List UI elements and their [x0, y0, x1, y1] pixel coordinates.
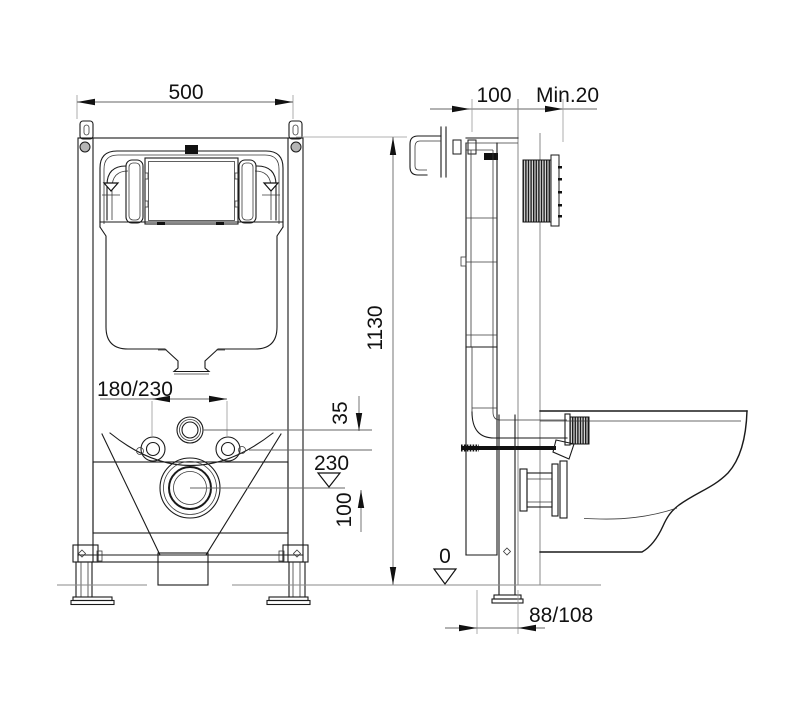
bolt-spacing-dimension: 180/230 — [97, 378, 227, 437]
top-clip — [185, 145, 198, 154]
frame-depth-label: 100 — [476, 84, 511, 107]
arrow-up-icon — [358, 490, 364, 508]
outlet-offset-label: 100 — [333, 492, 356, 527]
hatched-actuator-box — [523, 160, 551, 222]
adjuster-mark-right — [294, 550, 301, 557]
arrow-left-icon — [77, 99, 95, 105]
adjuster-mark-left — [79, 550, 86, 557]
cistern-column-left — [126, 160, 143, 223]
wall-min-label: Min.20 — [536, 84, 599, 107]
side-view: 100 Min.20 — [410, 84, 747, 634]
front-width-label: 500 — [168, 81, 203, 104]
height-label: 1130 — [364, 305, 387, 350]
wall-bracket — [410, 127, 499, 177]
technical-drawing-page: 500 — [0, 0, 800, 702]
support-feet-front — [71, 545, 310, 605]
arrow-right-icon — [275, 99, 293, 105]
lower-crossmember — [93, 462, 288, 533]
water-level-marker-left — [102, 183, 120, 195]
flush-bend-housing — [158, 553, 208, 585]
screw-head-left — [80, 142, 90, 152]
tab-slot-left — [84, 125, 89, 135]
drain-distance-label: 88/108 — [529, 604, 593, 627]
flush-offset-label: 35 — [329, 401, 352, 424]
tab-slot-right — [293, 125, 298, 135]
flush-pipe-front — [177, 417, 203, 443]
hex-nut — [453, 140, 461, 154]
front-view: 500 — [71, 81, 407, 605]
arrow-right-icon — [459, 625, 477, 631]
arrow-right-icon — [452, 106, 470, 112]
level-marker-triangle — [434, 569, 456, 584]
access-window — [145, 158, 238, 224]
installation-drawing: 500 — [0, 0, 800, 702]
level-chain-dimensions: 35 230 100 — [190, 396, 372, 532]
depth-dimension: 100 Min.20 — [430, 84, 599, 142]
arrow-up-icon — [390, 137, 396, 155]
floor-level-label: 0 — [439, 545, 451, 568]
drain-distance-dimension: 88/108 — [445, 590, 593, 634]
clamp-block — [484, 153, 498, 160]
screw-head-right — [291, 142, 301, 152]
floor-level-marker: 0 — [434, 545, 456, 584]
cistern-front — [100, 145, 283, 374]
arrow-down-icon — [356, 413, 362, 431]
width-dimension: 500 — [77, 81, 293, 119]
arrow-right-icon — [209, 396, 227, 402]
drain-connector-side — [520, 461, 567, 518]
arrow-down-icon — [390, 567, 396, 585]
hex-nut — [468, 140, 476, 154]
cone-nut — [553, 440, 574, 459]
flush-plate-block — [523, 155, 562, 226]
level-marker-triangle — [318, 473, 340, 487]
cistern-column-right — [239, 160, 256, 223]
outlet-level-label: 230 — [314, 452, 349, 475]
adjuster-mark — [504, 548, 511, 555]
